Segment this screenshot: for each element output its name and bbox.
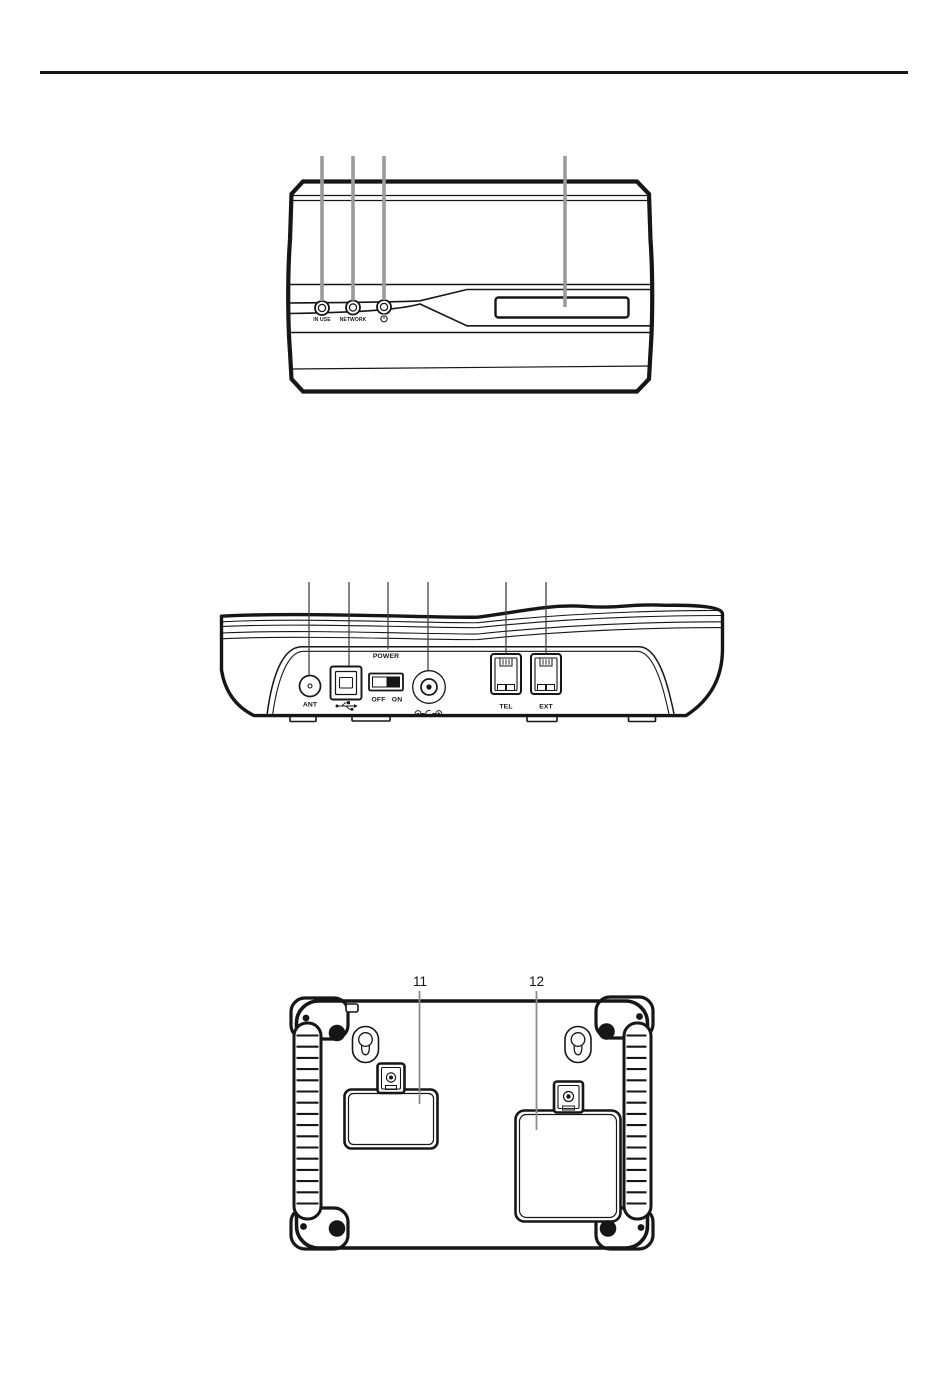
on-label: ON bbox=[392, 697, 402, 704]
ext-label: EXT bbox=[539, 704, 553, 711]
usb-port bbox=[331, 667, 362, 700]
led-network bbox=[346, 301, 360, 315]
ext-jack bbox=[531, 654, 561, 694]
tel-label: TEL bbox=[499, 704, 512, 711]
compartment-12 bbox=[516, 1111, 621, 1222]
power-switch bbox=[369, 674, 403, 691]
ant-connector bbox=[300, 676, 321, 697]
grip-ribs-left bbox=[294, 1023, 321, 1219]
display-window bbox=[496, 298, 629, 318]
figure-bottom-view: 11 12 bbox=[291, 974, 653, 1249]
foot-top-right bbox=[598, 1023, 615, 1040]
latch-right bbox=[554, 1082, 583, 1113]
led-in-use-label: IN USE bbox=[313, 317, 331, 323]
compartment-11 bbox=[345, 1090, 438, 1149]
tel-jack bbox=[491, 654, 521, 694]
top-edge-notch bbox=[346, 1004, 358, 1012]
dc-power-jack bbox=[413, 671, 446, 704]
foot-bottom-right bbox=[600, 1220, 617, 1237]
rear-device-outline bbox=[222, 605, 723, 716]
led-power bbox=[377, 300, 391, 314]
wall-mount-keyhole-right bbox=[565, 1027, 591, 1063]
front-device-outline bbox=[288, 182, 652, 392]
led-network-label: NETWORK bbox=[340, 317, 367, 323]
latch-left bbox=[378, 1064, 405, 1094]
figure-rear-view: ANT POWER OFF ON bbox=[222, 582, 723, 722]
figure-front-view: IN USE NETWORK bbox=[288, 156, 652, 392]
screw-hole-top-right bbox=[636, 1013, 643, 1020]
off-label: OFF bbox=[372, 697, 386, 704]
wall-mount-keyhole-left bbox=[353, 1027, 379, 1063]
manual-page: IN USE NETWORK bbox=[0, 0, 950, 1374]
screw-hole-top-left bbox=[303, 1015, 310, 1022]
screw-hole-bottom-right bbox=[638, 1224, 645, 1231]
screw-hole-bottom-left bbox=[300, 1223, 307, 1230]
power-label: POWER bbox=[373, 653, 399, 660]
grip-ribs-right bbox=[624, 1023, 651, 1219]
callout-11-label: 11 bbox=[413, 974, 427, 989]
device-diagrams: IN USE NETWORK bbox=[0, 0, 950, 1374]
callout-12-label: 12 bbox=[529, 974, 544, 989]
led-in-use bbox=[315, 301, 329, 315]
foot-bottom-left bbox=[329, 1220, 346, 1237]
ant-label: ANT bbox=[303, 702, 318, 709]
foot-top-left bbox=[329, 1025, 346, 1042]
